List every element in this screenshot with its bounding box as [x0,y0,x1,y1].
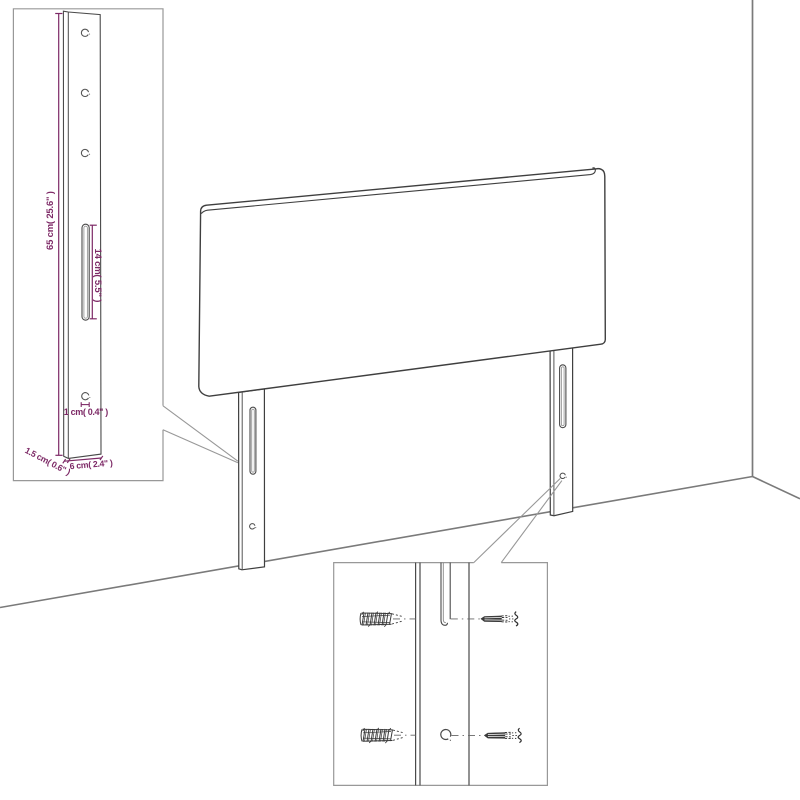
svg-text:14 cm( 5.5" ): 14 cm( 5.5" ) [92,249,103,303]
svg-text:1 cm( 0.4" ): 1 cm( 0.4" ) [64,407,108,417]
svg-text:65 cm( 25.6" ): 65 cm( 25.6" ) [45,191,56,250]
svg-text:6 cm( 2.4" ): 6 cm( 2.4" ) [69,458,113,472]
